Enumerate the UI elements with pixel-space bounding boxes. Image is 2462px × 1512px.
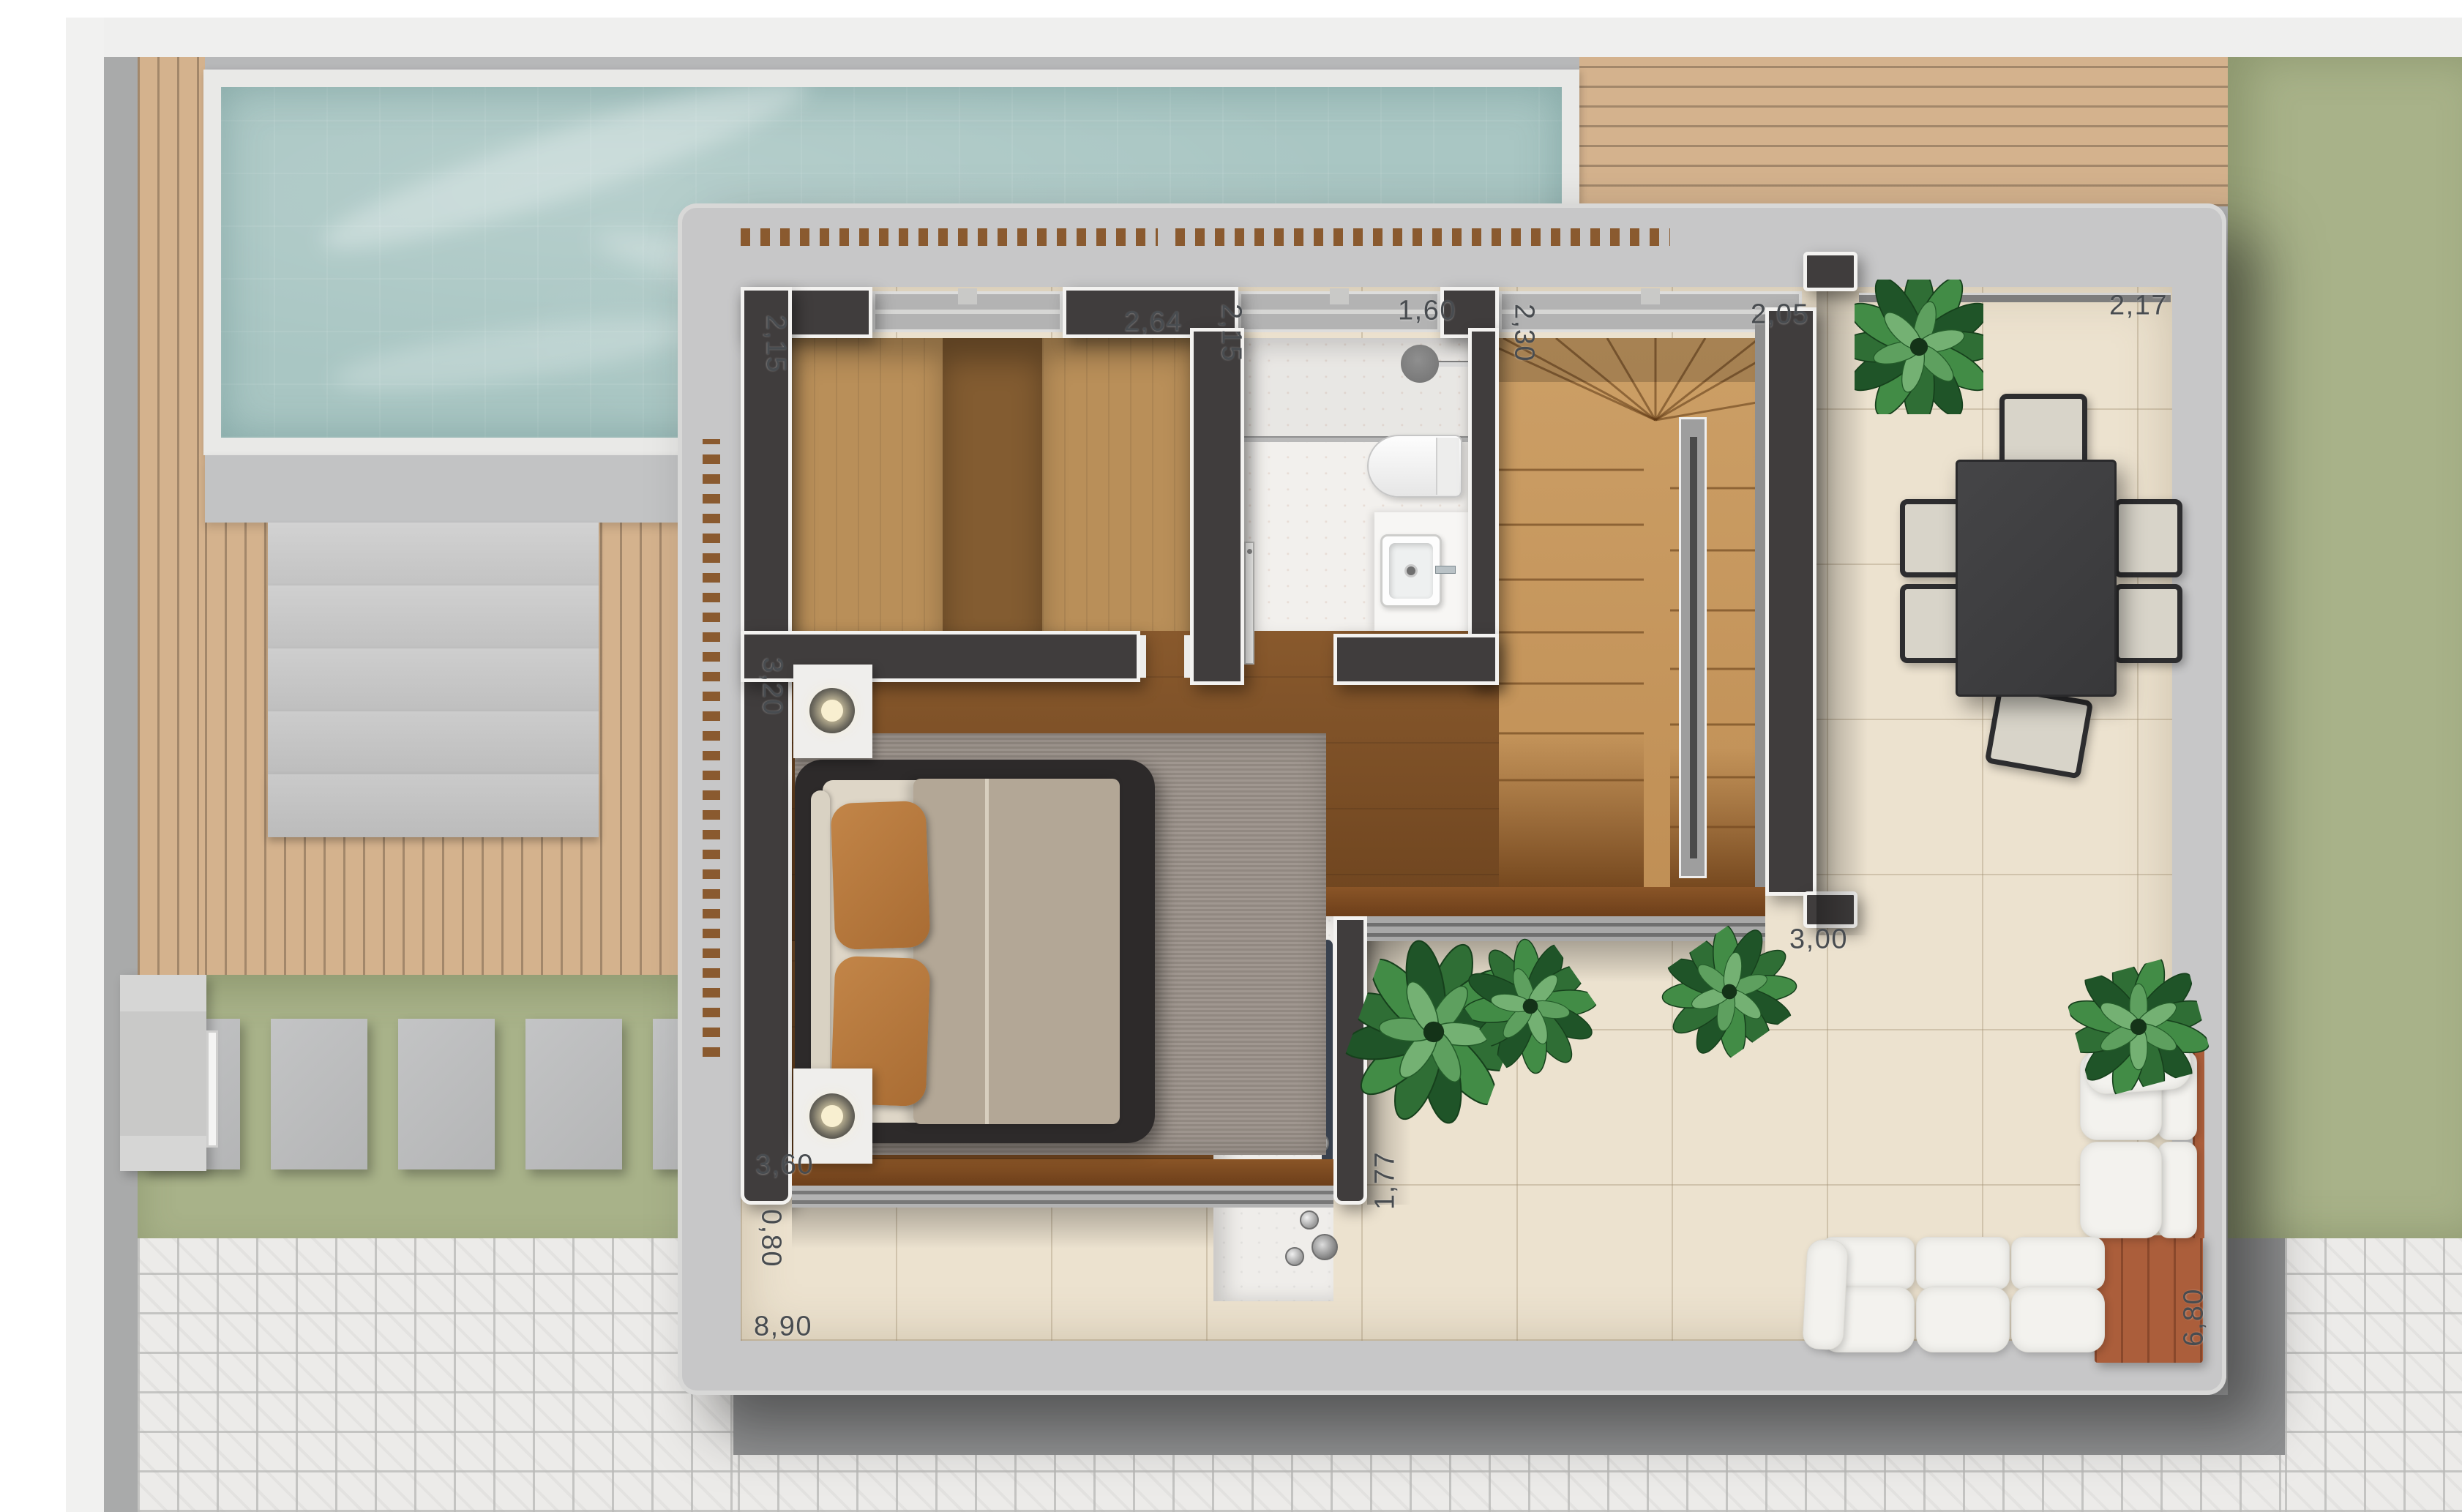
walkway-bottom [733, 1395, 2285, 1455]
stair-treads [1499, 338, 1765, 896]
stepping-stone [271, 1019, 367, 1169]
stair-rail-slot [1690, 437, 1697, 858]
dining-table [1956, 460, 2117, 697]
closet-wardrobe-right [1042, 338, 1190, 631]
plant-icon [1855, 280, 1983, 414]
brise-ticks-top [741, 228, 1670, 246]
floor-plan-scene: 2,15 2,64 2,15 1,60 2,30 2,05 2,17 3,20 … [0, 0, 2462, 1512]
dimension-label: 0,80 [755, 1209, 787, 1268]
lamp-glow [821, 1105, 843, 1127]
stepping-stone [525, 1019, 622, 1169]
wall-bath-south [1333, 634, 1499, 685]
sofa-seat-cushion [2011, 1287, 2105, 1352]
sofa-seat-cushion [2080, 1142, 2162, 1238]
blanket [913, 779, 1120, 1124]
pavers-bottom [738, 1455, 2462, 1512]
frame-left [66, 18, 104, 1512]
dimension-label: 2,15 [760, 315, 792, 373]
lawn-right [2228, 57, 2462, 1238]
dimension-label: 2,05 [1751, 299, 1809, 331]
side-gate [120, 975, 206, 1171]
dining-chair [2114, 584, 2182, 663]
door-handle-icon [1247, 549, 1252, 554]
wall-bath-left [1190, 328, 1244, 685]
side-gate-panel [120, 1011, 206, 1136]
stair-center-rail [1679, 417, 1707, 878]
wall-west [741, 287, 792, 1205]
sofa-armrest-pillow [1802, 1239, 1849, 1351]
shower-arm [1436, 361, 1470, 367]
sink [1380, 534, 1442, 607]
drain-icon [1404, 564, 1418, 577]
bathroom [1244, 338, 1468, 631]
water-ripple [329, 304, 699, 405]
closet-wardrobe-left [792, 338, 943, 631]
stair-step [268, 585, 599, 648]
sofa-back-cushion [2158, 1142, 2197, 1238]
pool-walkway [205, 455, 738, 523]
dimension-label: 2,64 [1124, 307, 1183, 338]
door-jamb [1140, 635, 1146, 678]
dimension-label: 3,60 [755, 1150, 814, 1181]
dimension-label: 8,90 [754, 1311, 812, 1343]
bedroom-slider-sill [792, 1159, 1333, 1186]
pavers-bottom-left [138, 1238, 738, 1512]
dimension-label: 3,20 [757, 657, 788, 716]
shower-head-icon [1401, 345, 1439, 383]
blanket-crease [985, 779, 989, 1124]
dining-chair [2114, 499, 2182, 577]
bathroom-door [1244, 542, 1254, 665]
walkway-right [2228, 1238, 2285, 1455]
wall-stairs-right [1765, 307, 1816, 896]
wall-bath-right [1468, 328, 1499, 685]
sofa-seat-cushion [1916, 1287, 2010, 1352]
bedroom-slider-track [792, 1186, 1333, 1208]
window-closet [872, 291, 1063, 332]
stepping-stone [398, 1019, 495, 1169]
deck-top-right [1579, 57, 2228, 206]
closet-room [792, 338, 1190, 631]
stair-handrail [1755, 315, 1765, 888]
side-gate-door [206, 1030, 218, 1148]
brise-gap [1158, 227, 1174, 247]
faucet-knob-icon [1300, 1210, 1319, 1230]
dimension-label: 2,15 [1216, 304, 1247, 362]
sofa-back-cushion [2011, 1237, 2105, 1290]
sofa-back-cushion [1916, 1237, 2010, 1290]
stairs-room [1499, 338, 1765, 896]
toilet-tank [1436, 438, 1459, 495]
stair-step [268, 774, 599, 837]
brise-ticks-left [703, 439, 720, 1057]
bolster-pillow [811, 790, 830, 1112]
frame-top [66, 18, 2462, 57]
faucet-knob-icon [1312, 1234, 1338, 1260]
stair-step [268, 523, 599, 585]
pillow [831, 801, 931, 950]
dining-chair [1985, 684, 2094, 779]
dimension-label: 3,00 [1789, 924, 1848, 956]
stair-step [268, 648, 599, 711]
site-edge-strip [104, 57, 138, 1512]
dimension-label: 2,30 [1508, 304, 1540, 362]
column [1803, 252, 1857, 291]
lamp-glow [821, 700, 843, 722]
dimension-label: 6,80 [2179, 1288, 2210, 1347]
dimension-label: 2,17 [2109, 291, 2168, 322]
faucet-icon [1435, 566, 1456, 574]
closet-walkway [943, 338, 1042, 631]
dimension-label: 1,60 [1398, 296, 1456, 327]
stair-step [268, 711, 599, 774]
deck-left-strip [138, 57, 205, 975]
pavers-right [2285, 1238, 2462, 1512]
exterior-stairs [268, 523, 599, 837]
faucet-knob-icon [1285, 1247, 1304, 1266]
door-jamb [1184, 635, 1190, 678]
toilet [1367, 435, 1462, 498]
dimension-label: 1,77 [1370, 1151, 1402, 1210]
